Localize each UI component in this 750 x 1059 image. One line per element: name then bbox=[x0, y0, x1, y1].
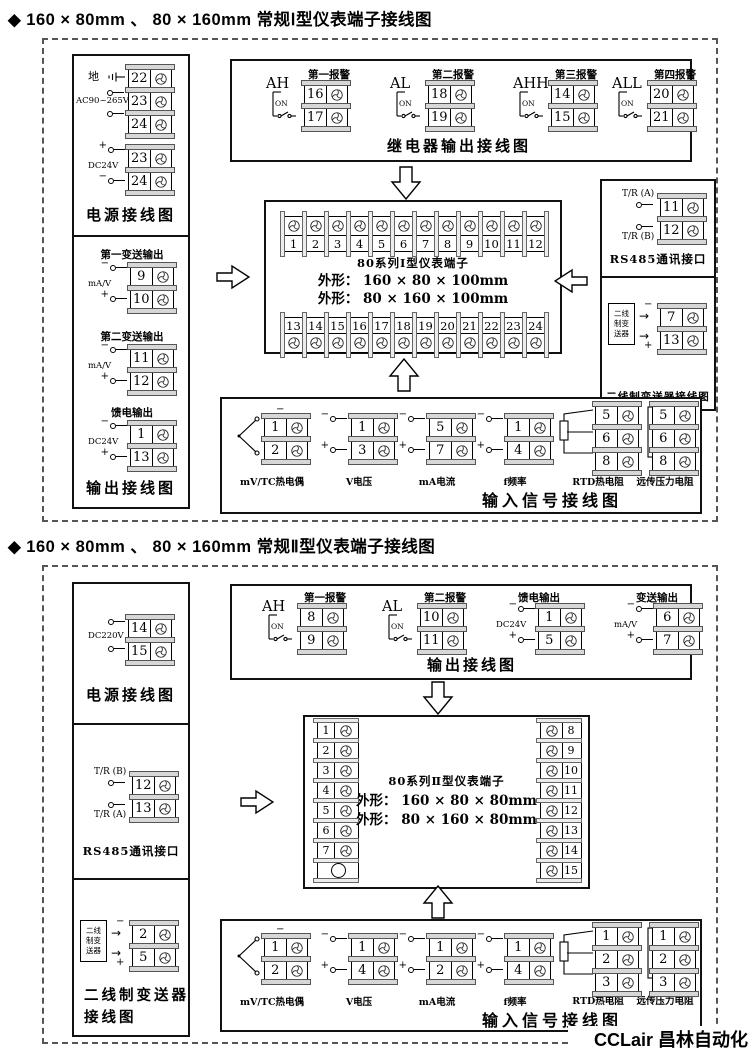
terminal: 3 bbox=[652, 973, 696, 992]
terminal-cap bbox=[548, 126, 598, 132]
input-group-label: mA电流 bbox=[400, 474, 474, 488]
screw-icon bbox=[290, 421, 304, 435]
terminal-cap bbox=[657, 239, 707, 245]
terminal: 4 bbox=[351, 216, 368, 252]
terminal-cap bbox=[125, 660, 175, 666]
terminal: 2 bbox=[429, 961, 473, 980]
terminal-block: 123 bbox=[652, 922, 696, 997]
terminal-number: 1 bbox=[429, 938, 452, 957]
terminal-number: 22 bbox=[483, 318, 500, 334]
terminal: 20 bbox=[650, 85, 694, 104]
terminal-screw bbox=[150, 149, 173, 168]
terminal: 9 bbox=[461, 216, 478, 252]
terminal-screw bbox=[678, 608, 701, 627]
terminal: 5 bbox=[652, 406, 696, 425]
output-box-label: 输出接线图 bbox=[427, 654, 517, 675]
input-group-label: RTD热电阻 bbox=[556, 474, 640, 488]
screw-icon bbox=[621, 432, 635, 446]
terminal: 9 bbox=[130, 267, 174, 286]
terminal: 1 bbox=[538, 608, 582, 627]
dev-line: 二线 bbox=[614, 309, 629, 319]
signal-label: mA/V bbox=[88, 279, 111, 289]
terminal-screw bbox=[152, 448, 175, 467]
terminal-cap bbox=[504, 979, 554, 985]
terminal-number: 8 bbox=[439, 236, 456, 251]
wire-end-icon bbox=[408, 966, 426, 973]
terminal: 19 bbox=[417, 317, 434, 353]
terminal-screw bbox=[505, 334, 522, 352]
input-group-label: f频率 bbox=[478, 474, 552, 488]
alarm-group-1: 第一报警 AH ON 1617 bbox=[266, 67, 362, 145]
terminal-cap bbox=[649, 447, 699, 453]
terminal-cap bbox=[548, 80, 598, 86]
thermocouple-icon bbox=[236, 931, 264, 981]
minus-sign: − bbox=[477, 932, 485, 938]
plus-sign: + bbox=[99, 143, 107, 149]
terminal-block: 1112 bbox=[660, 193, 704, 245]
wire-end-icon bbox=[110, 377, 128, 384]
output-wiring-box-1: 第一变送输出 910 − mA/V + 第二变送输出 1112 − mA/V +… bbox=[72, 235, 190, 509]
terminal-cap bbox=[657, 193, 707, 199]
terminal: 1 bbox=[351, 938, 395, 957]
terminal-block: 12 bbox=[429, 933, 473, 985]
screw-icon bbox=[158, 779, 172, 793]
terminal-screw bbox=[617, 950, 640, 969]
terminal-number: 12 bbox=[527, 236, 544, 251]
terminal-screw bbox=[674, 406, 697, 425]
terminal-screw bbox=[682, 198, 705, 217]
wire-end-icon bbox=[518, 636, 536, 643]
alarm-name: AH bbox=[266, 76, 289, 92]
screw-icon bbox=[154, 175, 168, 189]
terminal-number: 11 bbox=[420, 631, 443, 650]
terminal-cap bbox=[127, 420, 177, 426]
terminal-number: 21 bbox=[461, 318, 478, 334]
screw-icon bbox=[156, 451, 170, 465]
terminal-block: 13 bbox=[351, 413, 395, 465]
screw-icon bbox=[678, 455, 692, 469]
power-box-label: 电源接线图 bbox=[74, 204, 188, 225]
screw-icon bbox=[507, 336, 521, 350]
minus-sign: − bbox=[101, 419, 109, 425]
plus-sign: + bbox=[627, 633, 635, 639]
terminal-number: 7 bbox=[429, 441, 452, 460]
screw-icon bbox=[485, 336, 499, 350]
watermark: CCLair 昌林自动化 bbox=[568, 1026, 750, 1052]
terminal-screw bbox=[672, 108, 695, 127]
minus-sign: − bbox=[399, 412, 407, 418]
remote-resistor-input-group: 568 远传压力电阻 bbox=[644, 401, 700, 488]
section2-title: ◆ 160 × 80mm 、 80 × 160mm 常规Ⅱ型仪表端子接线图 bbox=[8, 533, 435, 557]
terminal-screw bbox=[541, 723, 562, 738]
terminal: 11 bbox=[505, 216, 522, 252]
terminal-cap bbox=[649, 991, 699, 997]
minus-sign: − bbox=[99, 174, 107, 180]
terminal-cap bbox=[129, 771, 179, 777]
terminal-cap bbox=[426, 979, 476, 985]
terminal-screw bbox=[286, 938, 309, 957]
wire-end-icon bbox=[518, 605, 536, 612]
terminal: 7 bbox=[656, 631, 700, 650]
terminal-screw bbox=[334, 723, 356, 738]
terminal-number: 6 bbox=[652, 429, 675, 448]
two-wire-group: 二线制变送器 − → → + 25 bbox=[80, 920, 184, 968]
screw-icon bbox=[686, 311, 700, 325]
terminal-cap bbox=[261, 413, 311, 419]
plus-sign: + bbox=[644, 343, 652, 349]
terminal-post bbox=[390, 211, 395, 257]
terminal-screw bbox=[573, 85, 596, 104]
terminal-cap bbox=[127, 390, 177, 396]
terminal-cap bbox=[653, 603, 703, 609]
block-arrow-down-icon bbox=[422, 681, 454, 715]
terminal-screw bbox=[451, 441, 474, 460]
input-group-label: mA电流 bbox=[400, 994, 474, 1008]
terminal-screw bbox=[529, 441, 552, 460]
alarm-group-2: 第二报警 AL ON 1819 bbox=[390, 67, 486, 145]
terminal-number: 12 bbox=[130, 372, 153, 391]
screw-icon bbox=[309, 219, 323, 233]
terminal-number: 1 bbox=[285, 236, 302, 251]
terminal-post bbox=[280, 312, 285, 358]
terminal-strip-bottom: 131415161718192021222324 bbox=[280, 312, 549, 358]
terminal-post bbox=[478, 211, 483, 257]
terminal-screw bbox=[505, 217, 522, 236]
screw-icon bbox=[682, 634, 696, 648]
type2-terminal-layout-block: 1234567 80系列Ⅱ型仪表端子 外形： 160 × 80 × 80mm 外… bbox=[303, 715, 590, 889]
screw-icon bbox=[686, 224, 700, 238]
terminal-number: 8 bbox=[595, 452, 618, 471]
terminal: 24 bbox=[527, 317, 544, 353]
terminal-number: 7 bbox=[417, 236, 434, 251]
terminal-block: 1011 bbox=[420, 603, 464, 655]
wire-end-icon bbox=[486, 415, 504, 422]
screw-icon bbox=[678, 432, 692, 446]
terminal-post bbox=[313, 878, 359, 883]
terminal-cap bbox=[129, 817, 179, 823]
screw-icon bbox=[545, 784, 559, 798]
screw-icon bbox=[577, 88, 591, 102]
terminal-cap bbox=[425, 103, 475, 109]
terminal-post bbox=[456, 211, 461, 257]
terminal-screw bbox=[286, 961, 309, 980]
screw-icon bbox=[454, 111, 468, 125]
group-title: 馈电输出 bbox=[78, 405, 186, 420]
screw-icon bbox=[290, 444, 304, 458]
minus-sign: − bbox=[627, 602, 635, 608]
terminal-screw bbox=[326, 85, 349, 104]
screw-icon bbox=[682, 611, 696, 625]
terminal-screw bbox=[541, 743, 562, 758]
plus-sign: + bbox=[477, 443, 485, 449]
terminal-screw bbox=[150, 619, 173, 638]
terminal-screw bbox=[154, 948, 177, 967]
terminal-number: 4 bbox=[507, 961, 530, 980]
plus-sign: + bbox=[399, 443, 407, 449]
terminal-strip-left: 1234567 bbox=[317, 718, 359, 883]
terminal-number: 5 bbox=[652, 406, 675, 425]
terminal-cap bbox=[125, 87, 175, 93]
terminal-screw bbox=[150, 642, 173, 661]
terminal-number: 24 bbox=[128, 172, 151, 191]
minus-sign: − bbox=[509, 602, 517, 608]
block-arrow-up-icon bbox=[422, 885, 454, 919]
terminal-block-dc: 2324 bbox=[128, 144, 172, 196]
two-wire-group: 二线制变送器 − → → + 713 bbox=[608, 303, 712, 351]
screw-icon bbox=[353, 219, 367, 233]
terminal: 2 bbox=[264, 441, 308, 460]
terminal-screw bbox=[527, 334, 544, 352]
terminal-screw bbox=[395, 217, 412, 236]
terminal-cap bbox=[261, 436, 311, 442]
input-group-label: V电压 bbox=[322, 474, 396, 488]
terminal-number: 24 bbox=[527, 318, 544, 334]
terminal-number: 14 bbox=[307, 318, 324, 334]
terminal-number: 13 bbox=[285, 318, 302, 334]
ac-power-group: 222324 地 AC90~265V bbox=[80, 64, 184, 128]
block-dim-2: 外形： 80 × 160 × 100mm bbox=[266, 287, 560, 307]
terminal-cap bbox=[125, 637, 175, 643]
dc220v-group: 1415 DC220V bbox=[80, 614, 184, 660]
terminal-screw bbox=[150, 172, 173, 191]
signal-label: mA/V bbox=[614, 620, 637, 630]
terminal-block: 1819 bbox=[428, 80, 472, 132]
terminal-screw bbox=[326, 108, 349, 127]
terminal-number: 7 bbox=[656, 631, 679, 650]
terminal-cap bbox=[348, 956, 398, 962]
screw-icon bbox=[621, 976, 635, 990]
terminal: 12 bbox=[527, 216, 544, 252]
terminal-post bbox=[346, 312, 351, 358]
plus-sign: + bbox=[101, 450, 109, 456]
terminal: 8 bbox=[595, 452, 639, 471]
terminal-screw bbox=[152, 425, 175, 444]
wire-end-icon bbox=[108, 645, 126, 652]
terminal-number: 2 bbox=[264, 441, 287, 460]
terminal-cap bbox=[301, 80, 351, 86]
minus-sign: − bbox=[101, 343, 109, 349]
wire-end-icon bbox=[408, 935, 426, 942]
terminal: 2 bbox=[307, 216, 324, 252]
terminal-block: 123 bbox=[595, 922, 639, 997]
terminal: 1 bbox=[595, 927, 639, 946]
terminal: 5 bbox=[132, 948, 176, 967]
terminal-number: 10 bbox=[562, 763, 579, 778]
input-box-label: 输入信号接线图 bbox=[482, 487, 622, 511]
dev-line: 二线 bbox=[86, 926, 101, 936]
on-label: ON bbox=[522, 99, 535, 108]
input-group-label: V电压 bbox=[322, 994, 396, 1008]
terminal-screw bbox=[322, 608, 345, 627]
terminal: 15 bbox=[551, 108, 595, 127]
tr-b-label: T/R (B) bbox=[94, 767, 126, 777]
terminal: 13 bbox=[132, 799, 176, 818]
screw-icon bbox=[156, 352, 170, 366]
relay-box-label: 继电器输出接线图 bbox=[387, 135, 531, 156]
tc-input-group: − + 12 mV/TC热电偶 bbox=[228, 407, 316, 488]
terminal: 4 bbox=[507, 441, 551, 460]
terminal-cap bbox=[127, 466, 177, 472]
terminal-block: 568 bbox=[595, 401, 639, 476]
terminal-cap bbox=[426, 933, 476, 939]
terminal: 8 bbox=[540, 723, 582, 738]
tr-a-label: T/R (A) bbox=[94, 810, 126, 820]
minus-sign: − bbox=[644, 302, 652, 308]
terminal-cap bbox=[129, 966, 179, 972]
terminal-screw bbox=[154, 776, 177, 795]
minus-sign: − bbox=[321, 932, 329, 938]
block-arrow-down-icon bbox=[390, 166, 422, 200]
terminal: 13 bbox=[540, 823, 582, 838]
terminal-post bbox=[313, 758, 359, 763]
f-input-group: − + 14 f频率 bbox=[478, 407, 552, 488]
terminal: 1 bbox=[652, 927, 696, 946]
input-group-label: f频率 bbox=[478, 994, 552, 1008]
terminal: 10 bbox=[420, 608, 464, 627]
terminal: 5 bbox=[429, 418, 473, 437]
terminal-number: 11 bbox=[130, 349, 153, 368]
two-wire-label-1: 二线制变送器 bbox=[84, 984, 189, 1005]
input-signal-box-2: − + 12 mV/TC热电偶 − + 14 V电压 − + 1 bbox=[220, 919, 702, 1032]
rs485-group: T/R (B) 1213 T/R (A) bbox=[80, 771, 184, 821]
screw-icon bbox=[621, 455, 635, 469]
thermocouple-icon bbox=[236, 411, 264, 461]
terminal-number: 12 bbox=[132, 776, 155, 795]
terminal: 3 bbox=[329, 216, 346, 252]
terminal-number: 10 bbox=[130, 290, 153, 309]
terminal: 13 bbox=[285, 317, 302, 353]
wire-end-icon bbox=[636, 223, 654, 230]
wire-end-icon bbox=[110, 295, 128, 302]
terminal-cap bbox=[417, 649, 467, 655]
terminal-number: 1 bbox=[130, 425, 153, 444]
screw-icon bbox=[326, 611, 340, 625]
terminal-number: 2 bbox=[132, 925, 155, 944]
terminal-block: 57 bbox=[429, 413, 473, 465]
terminal: 1 bbox=[507, 938, 551, 957]
terminal-cap bbox=[125, 64, 175, 70]
screw-icon bbox=[686, 201, 700, 215]
terminal-cap bbox=[548, 103, 598, 109]
rtd-resistor-icon bbox=[557, 401, 595, 467]
screw-icon bbox=[455, 421, 469, 435]
terminal-block: 1415 bbox=[128, 614, 172, 666]
terminal-cap bbox=[127, 367, 177, 373]
terminal-screw bbox=[674, 927, 697, 946]
plus-sign: + bbox=[399, 963, 407, 969]
terminal-screw bbox=[451, 961, 474, 980]
terminal: 2 bbox=[317, 743, 359, 758]
terminal-post bbox=[522, 312, 527, 358]
terminal: 1 bbox=[130, 425, 174, 444]
terminal-post bbox=[536, 838, 582, 843]
terminal-block: 1213 bbox=[132, 771, 176, 823]
minus-sign: − bbox=[116, 919, 124, 925]
terminal-number: 9 bbox=[562, 743, 579, 758]
power-wiring-box-2: 1415 DC220V 电源接线图 bbox=[72, 582, 190, 725]
terminal-number: 17 bbox=[304, 108, 327, 127]
rs485-label: RS485通讯接口 bbox=[602, 251, 714, 267]
wire-end-icon bbox=[486, 446, 504, 453]
terminal-number: 3 bbox=[329, 236, 346, 251]
rs485-and-transmitter-box-1: T/R (A) 1112 T/R (B) RS485通讯接口 二线制变送器 − … bbox=[600, 179, 716, 411]
screw-icon bbox=[621, 930, 635, 944]
terminal: 6 bbox=[656, 608, 700, 627]
terminal-screw bbox=[439, 217, 456, 236]
terminal-number: 19 bbox=[428, 108, 451, 127]
screw-icon bbox=[533, 941, 547, 955]
terminal-cap bbox=[592, 447, 642, 453]
terminal-cap bbox=[426, 436, 476, 442]
terminal: 12 bbox=[540, 803, 582, 818]
screw-icon bbox=[154, 118, 168, 132]
terminal-screw bbox=[450, 85, 473, 104]
ground-label: 地 bbox=[88, 68, 99, 84]
terminal-cap bbox=[657, 326, 707, 332]
block-arrow-right-icon bbox=[216, 264, 250, 290]
terminal-cap bbox=[426, 459, 476, 465]
on-label: ON bbox=[275, 99, 288, 108]
terminal-screw bbox=[451, 418, 474, 437]
terminal-cap bbox=[129, 943, 179, 949]
terminal-cap bbox=[125, 110, 175, 116]
terminal-screw bbox=[674, 950, 697, 969]
terminal-number: 10 bbox=[420, 608, 443, 627]
terminal-screw bbox=[560, 631, 583, 650]
terminal: 8 bbox=[652, 452, 696, 471]
alarm-group-3: 第三报警 AHH ON 1415 bbox=[513, 67, 609, 145]
terminal: 13 bbox=[130, 448, 174, 467]
terminal-cap bbox=[261, 979, 311, 985]
terminal-cap bbox=[348, 413, 398, 419]
terminal-cap bbox=[592, 424, 642, 430]
dev-line: 送器 bbox=[86, 946, 101, 956]
terminal-cap bbox=[301, 126, 351, 132]
screw-icon bbox=[397, 336, 411, 350]
terminal-cap bbox=[504, 436, 554, 442]
terminal: 7 bbox=[660, 308, 704, 327]
dev-line: 制变 bbox=[614, 319, 629, 329]
terminal-screw bbox=[150, 69, 173, 88]
terminal-number: 1 bbox=[318, 723, 334, 738]
terminal-block: 14 bbox=[351, 933, 395, 985]
terminal-cap bbox=[348, 979, 398, 985]
terminal-screw bbox=[373, 418, 396, 437]
terminal-block: 713 bbox=[660, 303, 704, 355]
plus-sign: + bbox=[509, 633, 517, 639]
input-group-label: mV/TC热电偶 bbox=[228, 994, 316, 1008]
alarm-name: ALL bbox=[612, 76, 642, 92]
alarm-name: AHH bbox=[513, 76, 549, 92]
wire-end-icon bbox=[107, 110, 125, 117]
terminal: 14 bbox=[128, 619, 172, 638]
terminal-block: 12 bbox=[264, 413, 308, 465]
terminal-post bbox=[313, 778, 359, 783]
terminal-cap bbox=[297, 649, 347, 655]
screw-icon bbox=[678, 409, 692, 423]
terminal: 19 bbox=[428, 108, 472, 127]
terminal-number: 23 bbox=[505, 318, 522, 334]
terminal-number: 1 bbox=[507, 418, 530, 437]
screw-icon bbox=[533, 964, 547, 978]
terminal-post bbox=[522, 211, 527, 257]
rtd-input-group: 123 RTD热电阻 bbox=[556, 922, 640, 1007]
type1-terminal-layout-block: 123456789101112 80系列Ⅰ型仪表端子 外形： 160 × 80 … bbox=[264, 200, 562, 354]
screw-icon bbox=[339, 744, 353, 758]
terminal: 5 bbox=[538, 631, 582, 650]
terminal-number: 14 bbox=[128, 619, 151, 638]
terminal-number: 15 bbox=[329, 318, 346, 334]
